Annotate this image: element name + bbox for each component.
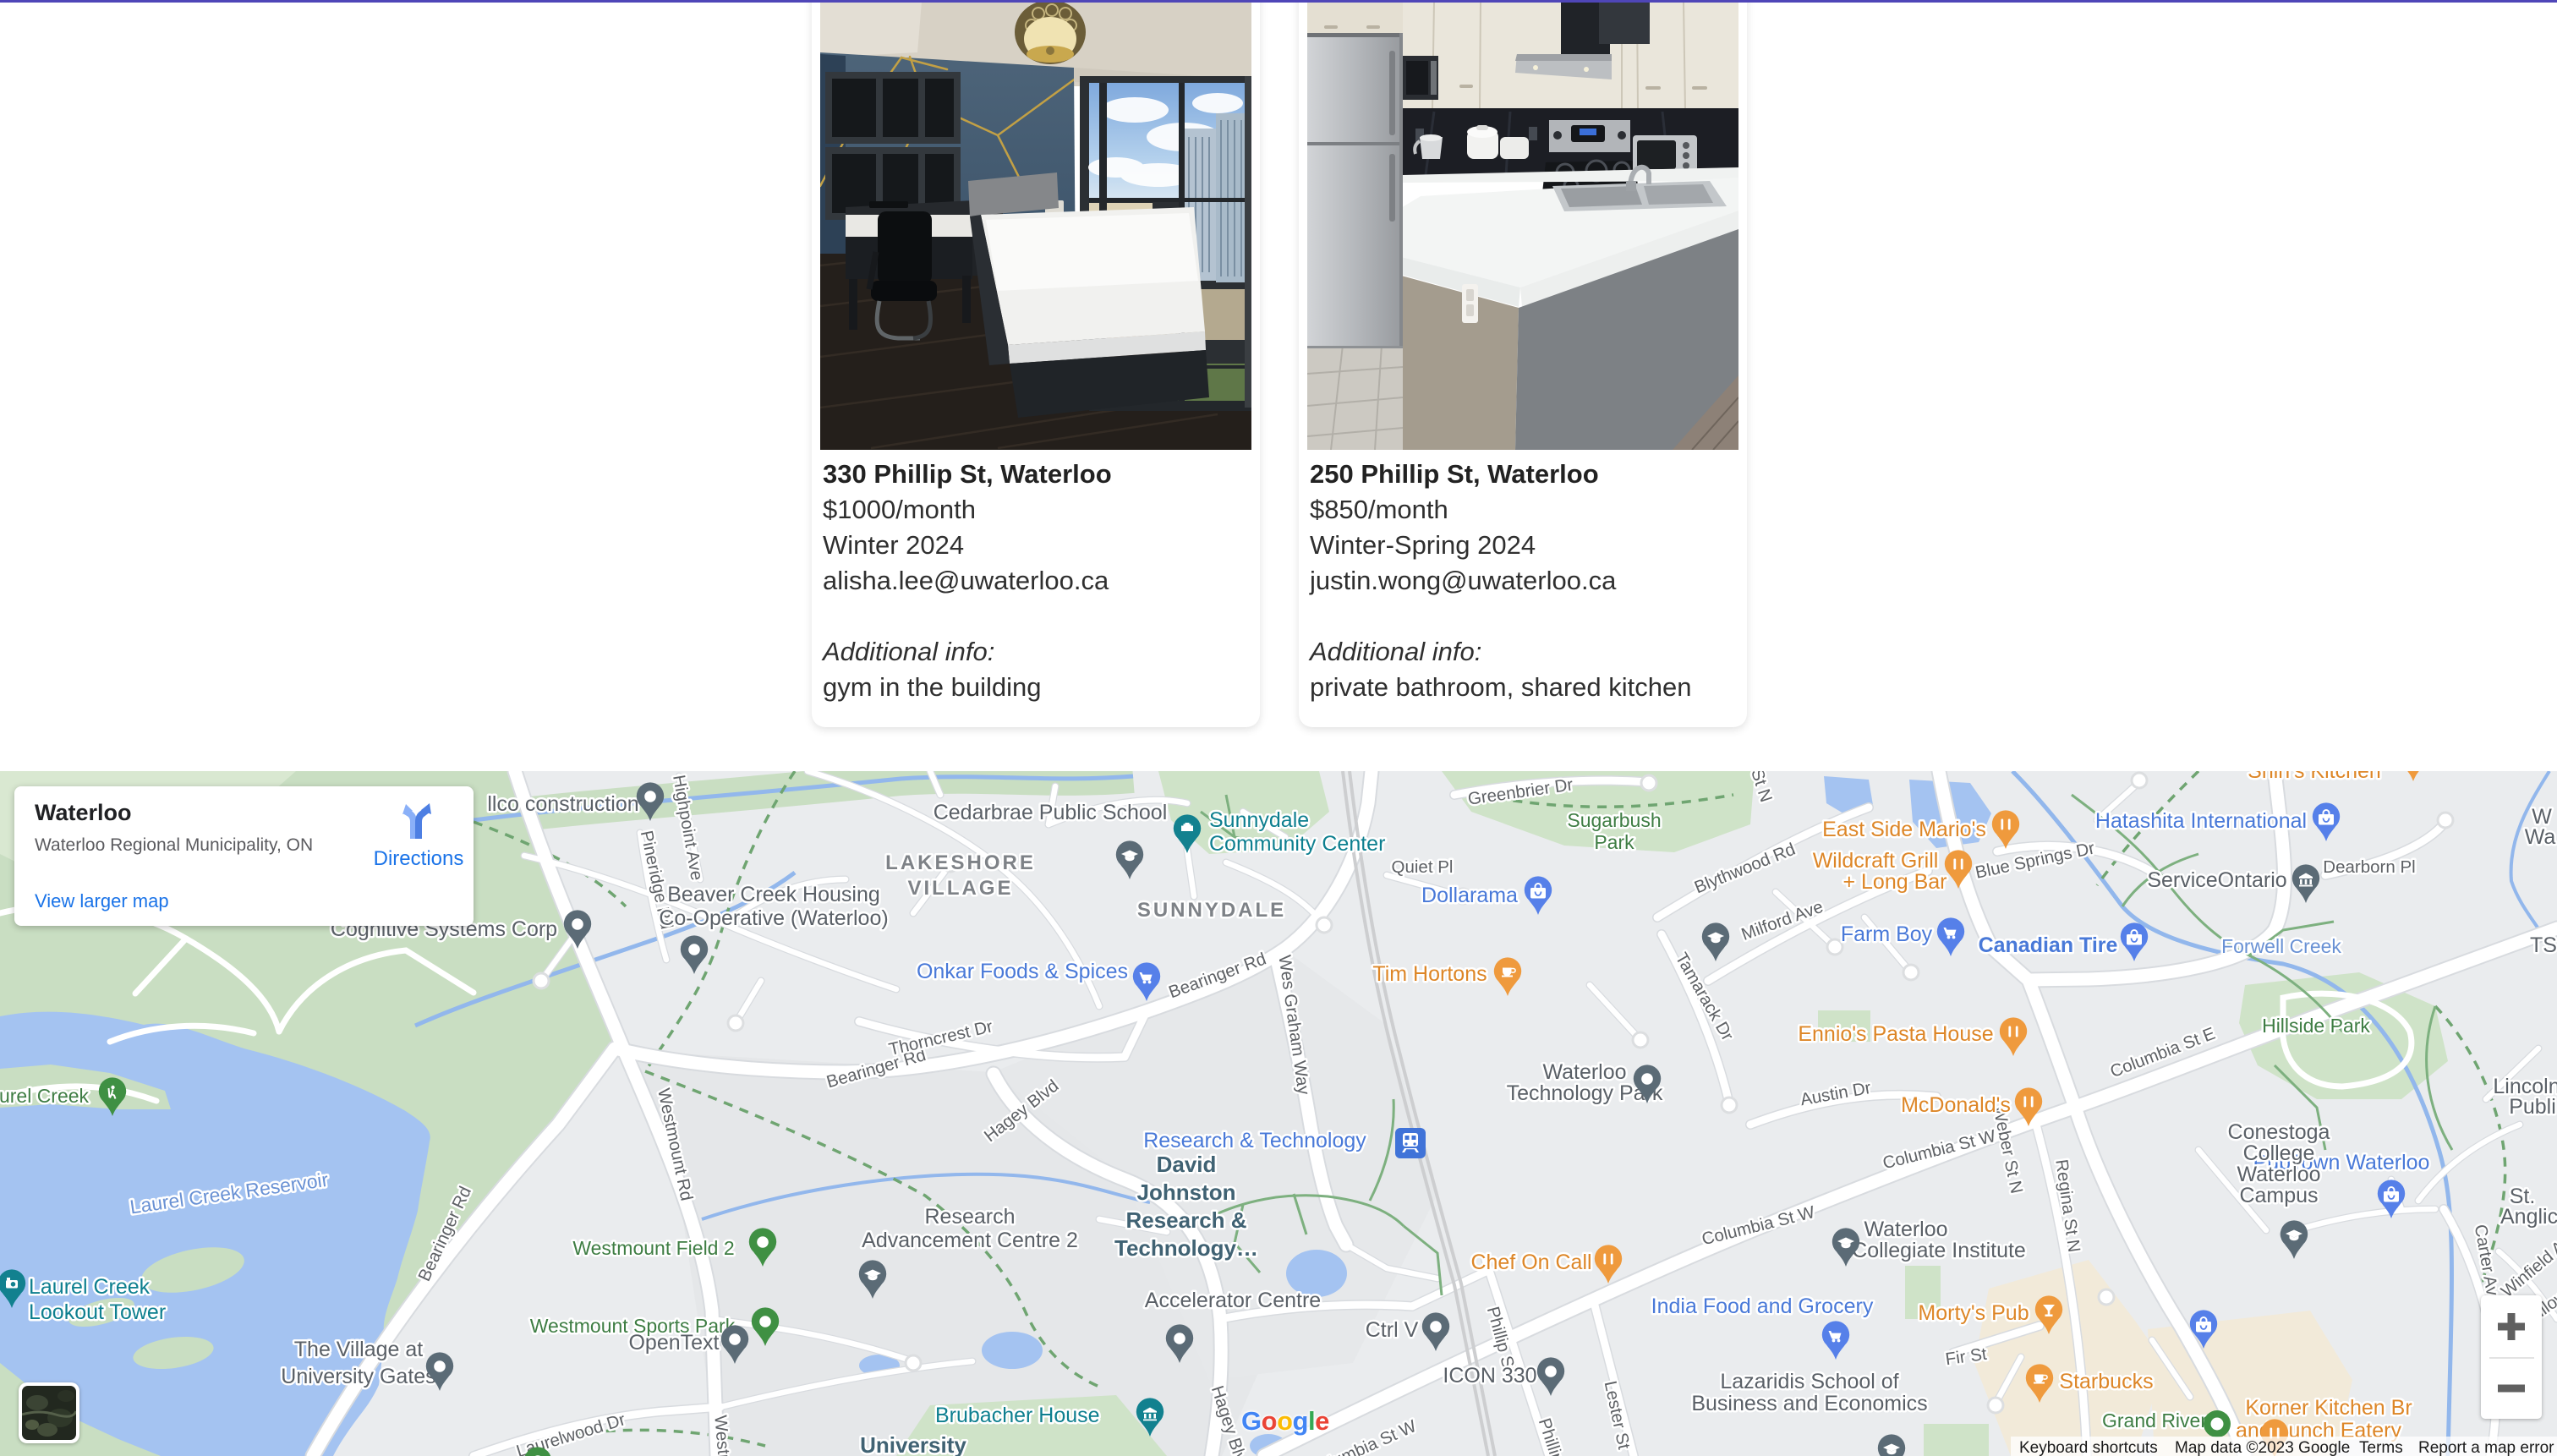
svg-text:Canadian Tire: Canadian Tire: [1979, 933, 2118, 957]
svg-text:Morty's Pub: Morty's Pub: [1918, 1301, 2029, 1325]
svg-text:Dearborn Pl: Dearborn Pl: [2323, 857, 2415, 877]
svg-text:Forwell Creek: Forwell Creek: [2221, 935, 2341, 957]
svg-text:Beaver Creek Housing: Beaver Creek Housing: [667, 883, 880, 906]
svg-text:University: University: [860, 1432, 966, 1456]
svg-text:College: College: [2243, 1141, 2315, 1165]
svg-text:Lookout Tower: Lookout Tower: [29, 1300, 166, 1324]
svg-text:Co-Operative (Waterloo): Co-Operative (Waterloo): [659, 906, 888, 930]
svg-text:Accelerator Centre: Accelerator Centre: [1145, 1289, 1321, 1312]
svg-text:Laurel Creek: Laurel Creek: [29, 1275, 151, 1299]
svg-text:TS: TS: [2530, 933, 2557, 957]
svg-text:ICON 330: ICON 330: [1443, 1364, 1536, 1388]
svg-text:Johnston: Johnston: [1137, 1180, 1236, 1205]
svg-text:Ctrl V: Ctrl V: [1366, 1318, 1419, 1342]
svg-text:Waterloo: Waterloo: [1542, 1060, 1626, 1084]
svg-text:Wa: Wa: [2525, 825, 2556, 849]
svg-text:Westm: Westm: [710, 1415, 734, 1456]
svg-text:Quiet Pl: Quiet Pl: [1392, 857, 1454, 877]
svg-text:Sunnydale: Sunnydale: [1209, 808, 1309, 832]
svg-text:Chef On Call: Chef On Call: [1470, 1251, 1591, 1274]
svg-text:University Gates: University Gates: [281, 1365, 435, 1388]
svg-text:Waterloo: Waterloo: [1864, 1218, 1947, 1241]
svg-text:+ Long Bar: + Long Bar: [1842, 870, 1946, 894]
svg-text:Wildcraft Grill: Wildcraft Grill: [1813, 849, 1939, 873]
svg-text:Waterloo: Waterloo: [2237, 1163, 2320, 1186]
svg-text:Shin's Kitchen: Shin's Kitchen: [2248, 771, 2381, 783]
svg-text:llco construction: llco construction: [487, 792, 638, 816]
svg-text:Grand River: Grand River: [2102, 1409, 2207, 1431]
svg-text:Campus: Campus: [2239, 1184, 2318, 1207]
svg-text:Technology…: Technology…: [1114, 1235, 1258, 1261]
svg-text:Brubacher House: Brubacher House: [935, 1404, 1100, 1427]
svg-text:Hatashita International: Hatashita International: [2095, 809, 2307, 833]
svg-text:Farm Boy: Farm Boy: [1841, 922, 1933, 946]
svg-text:David: David: [1157, 1152, 1217, 1177]
svg-text:VILLAGE: VILLAGE: [907, 877, 1013, 900]
svg-text:Advancement Centre 2: Advancement Centre 2: [862, 1229, 1078, 1252]
svg-text:Conestoga: Conestoga: [2228, 1120, 2330, 1144]
svg-text:Research & Technology: Research & Technology: [1143, 1129, 1366, 1152]
svg-text:Lazaridis School of: Lazaridis School of: [1720, 1370, 1898, 1393]
svg-text:Business and Economics: Business and Economics: [1691, 1392, 1927, 1415]
svg-text:Publi: Publi: [2509, 1095, 2556, 1119]
svg-text:Community Center: Community Center: [1209, 832, 1385, 856]
svg-text:East Side Mario's: East Side Mario's: [1822, 818, 1986, 841]
svg-text:LAKESHORE: LAKESHORE: [885, 851, 1036, 874]
svg-text:SUNNYDALE: SUNNYDALE: [1137, 899, 1286, 922]
svg-text:Tim Hortons: Tim Hortons: [1372, 962, 1487, 986]
svg-text:Research &: Research &: [1125, 1207, 1246, 1233]
svg-text:Park: Park: [1594, 831, 1634, 853]
svg-text:Anglica: Anglica: [2500, 1205, 2557, 1229]
svg-text:Research: Research: [925, 1205, 1016, 1229]
svg-text:urel Creek: urel Creek: [0, 1085, 90, 1107]
svg-text:India Food and Grocery: India Food and Grocery: [1651, 1295, 1874, 1318]
svg-text:Onkar Foods & Spices: Onkar Foods & Spices: [917, 960, 1128, 983]
svg-text:ServiceOntario: ServiceOntario: [2147, 868, 2286, 892]
svg-text:The Village at: The Village at: [294, 1338, 423, 1361]
svg-text:Sugarbush: Sugarbush: [1567, 809, 1661, 831]
svg-text:Ennio's Pasta House: Ennio's Pasta House: [1798, 1022, 1993, 1046]
svg-text:Hillside Park: Hillside Park: [2262, 1015, 2370, 1037]
svg-text:Korner Kitchen Br: Korner Kitchen Br: [2245, 1396, 2412, 1420]
svg-text:OpenText: OpenText: [628, 1331, 719, 1355]
svg-text:Dollarama: Dollarama: [1421, 884, 1518, 907]
svg-text:Westmount Field 2: Westmount Field 2: [572, 1237, 734, 1259]
svg-text:Cedarbrae Public School: Cedarbrae Public School: [934, 801, 1168, 824]
svg-text:McDonald's: McDonald's: [1901, 1093, 2011, 1117]
svg-text:Collegiate Institute: Collegiate Institute: [1852, 1239, 2026, 1262]
svg-text:Starbucks: Starbucks: [2059, 1370, 2153, 1393]
